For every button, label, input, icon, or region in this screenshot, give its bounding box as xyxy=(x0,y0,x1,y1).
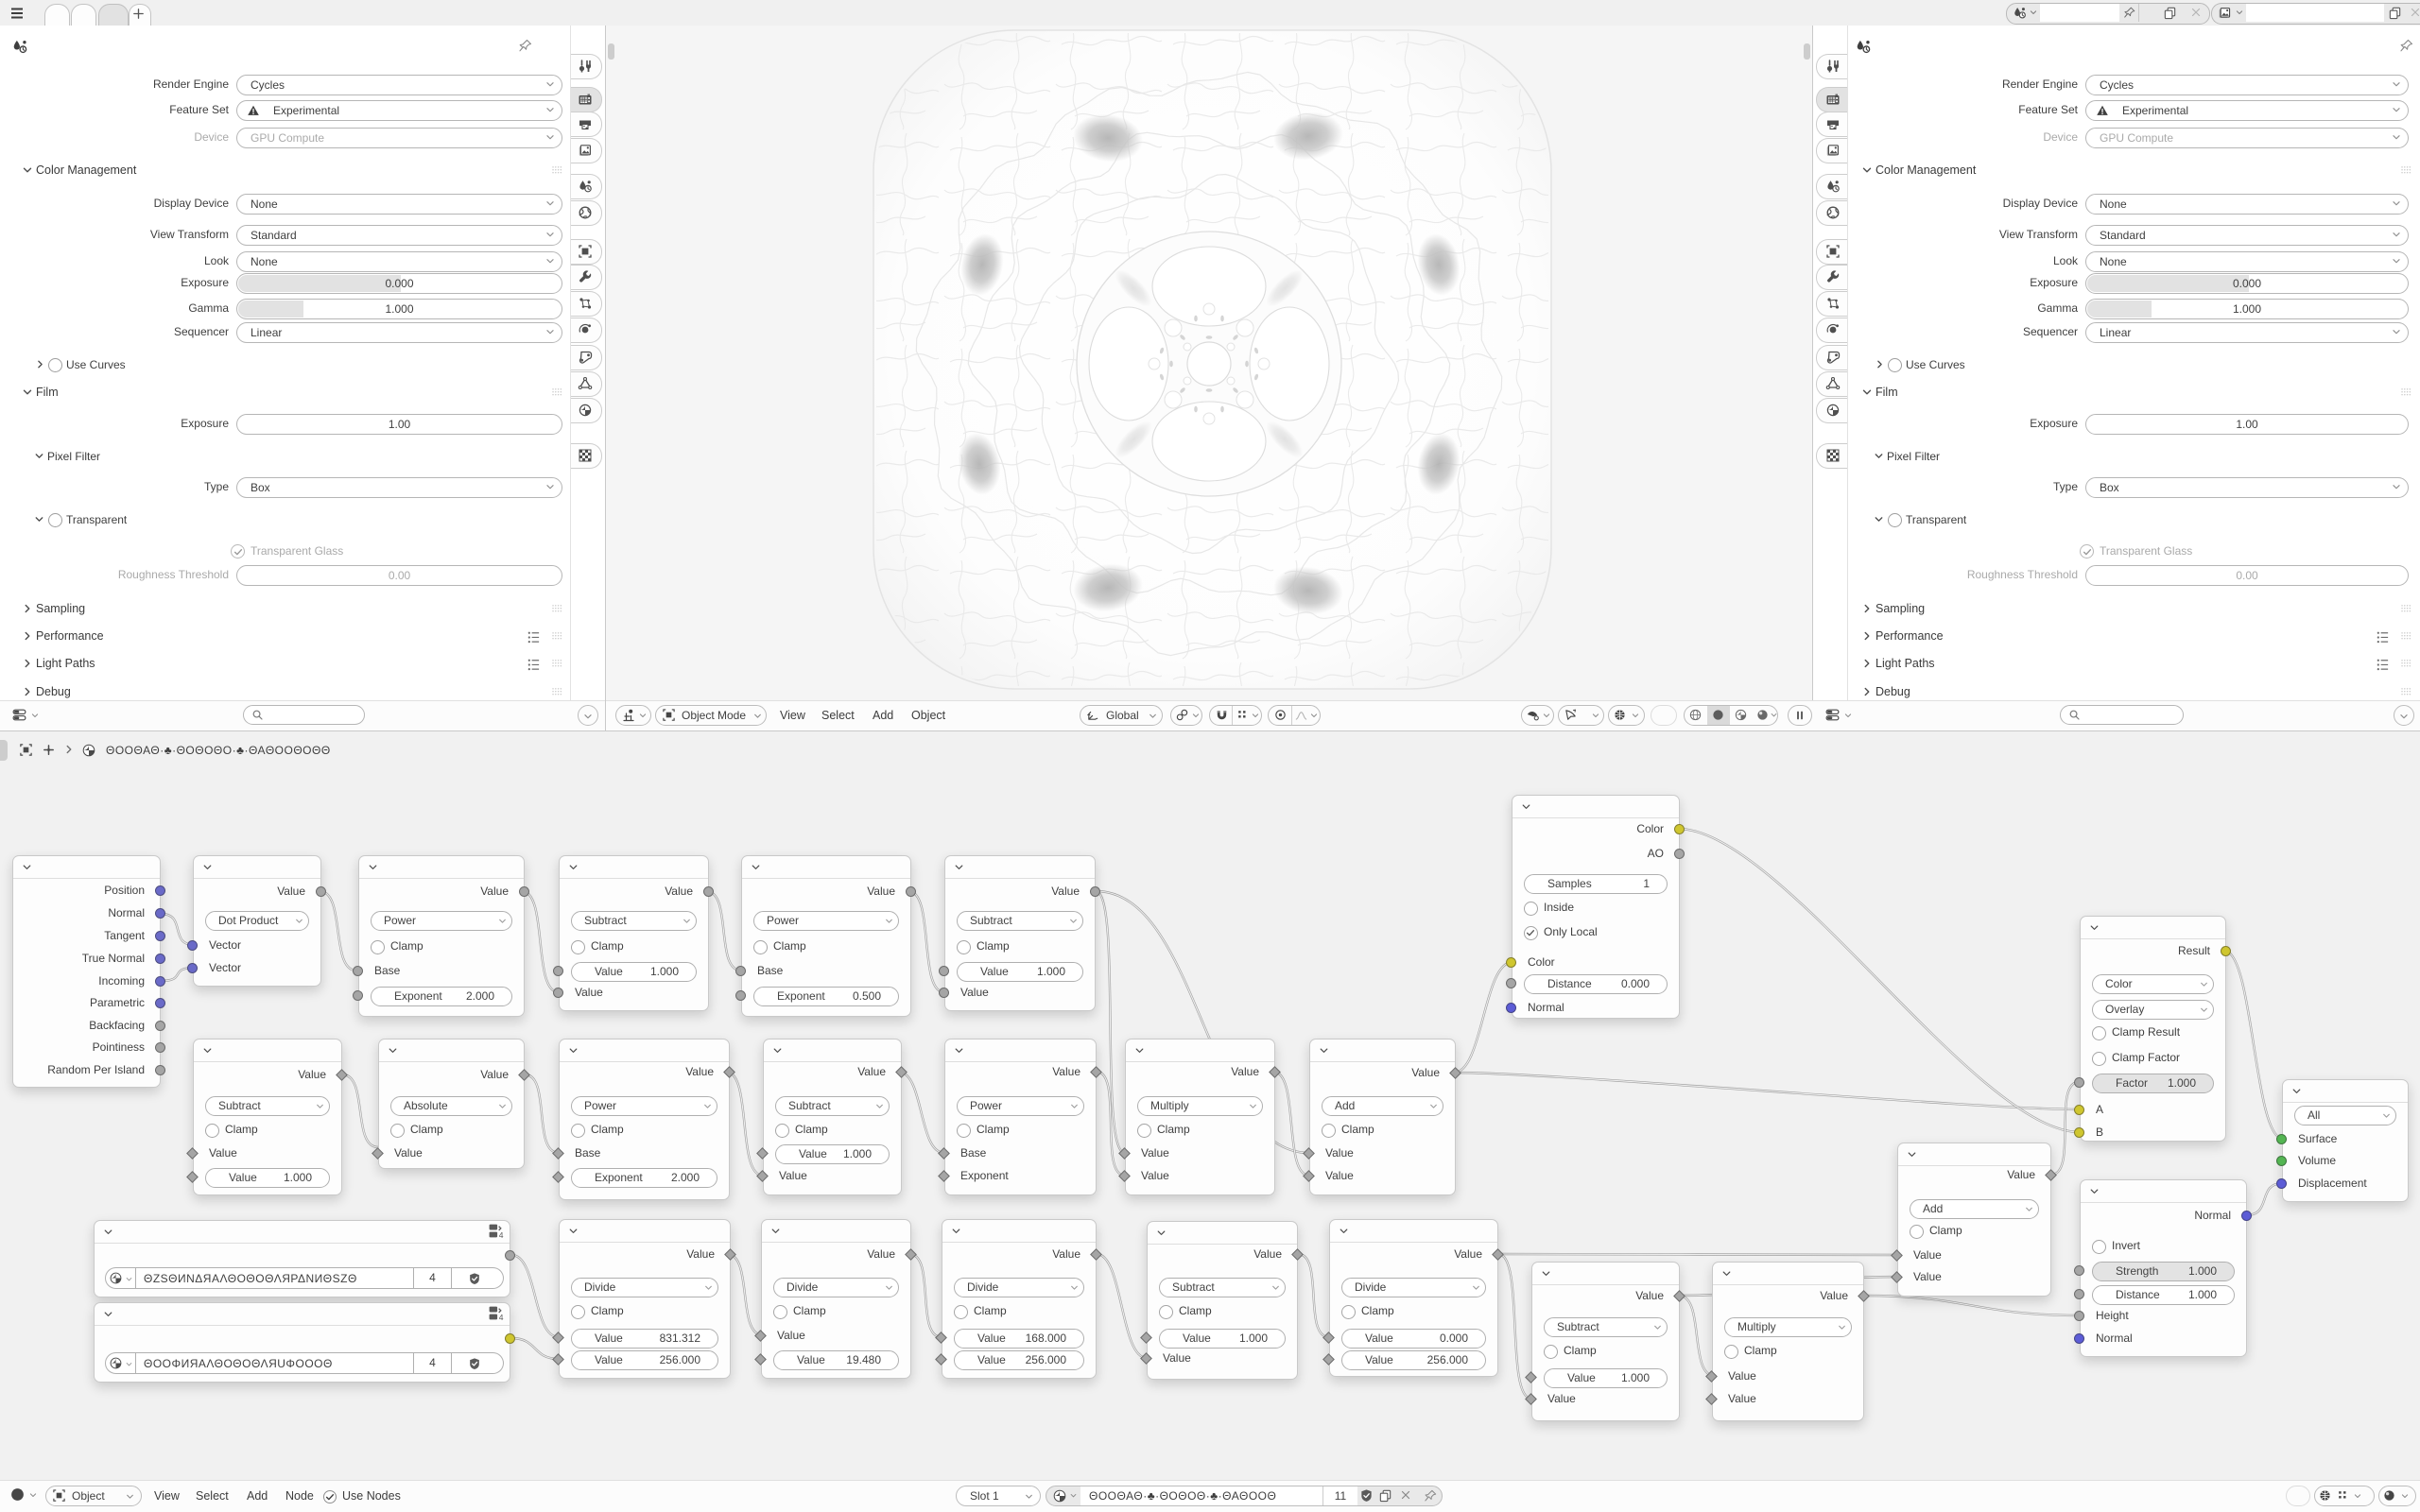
svg-text:4: 4 xyxy=(499,1313,504,1321)
svg-text:4: 4 xyxy=(499,1230,504,1239)
